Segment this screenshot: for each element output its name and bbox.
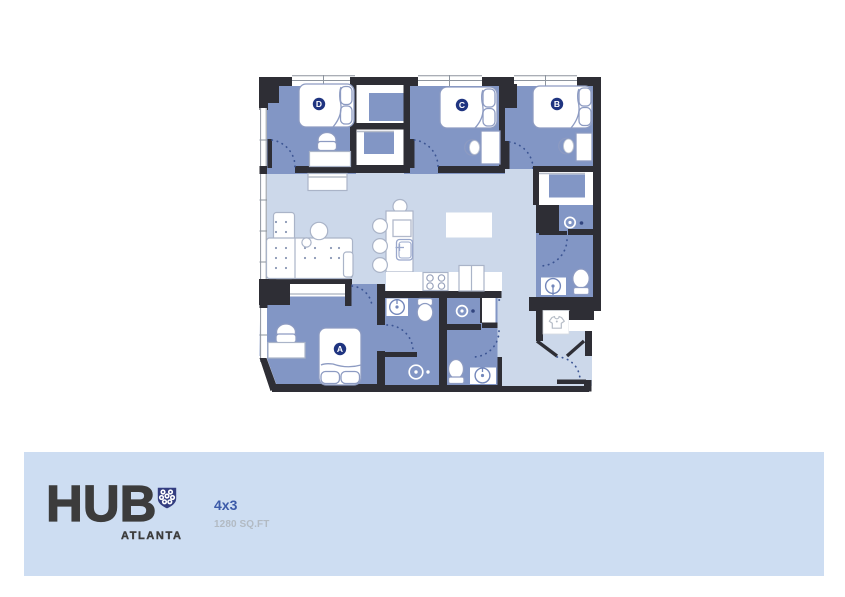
svg-text:C: C (459, 100, 465, 110)
svg-text:A: A (337, 344, 343, 354)
svg-text:D: D (316, 99, 322, 109)
svg-text:B: B (554, 99, 560, 109)
